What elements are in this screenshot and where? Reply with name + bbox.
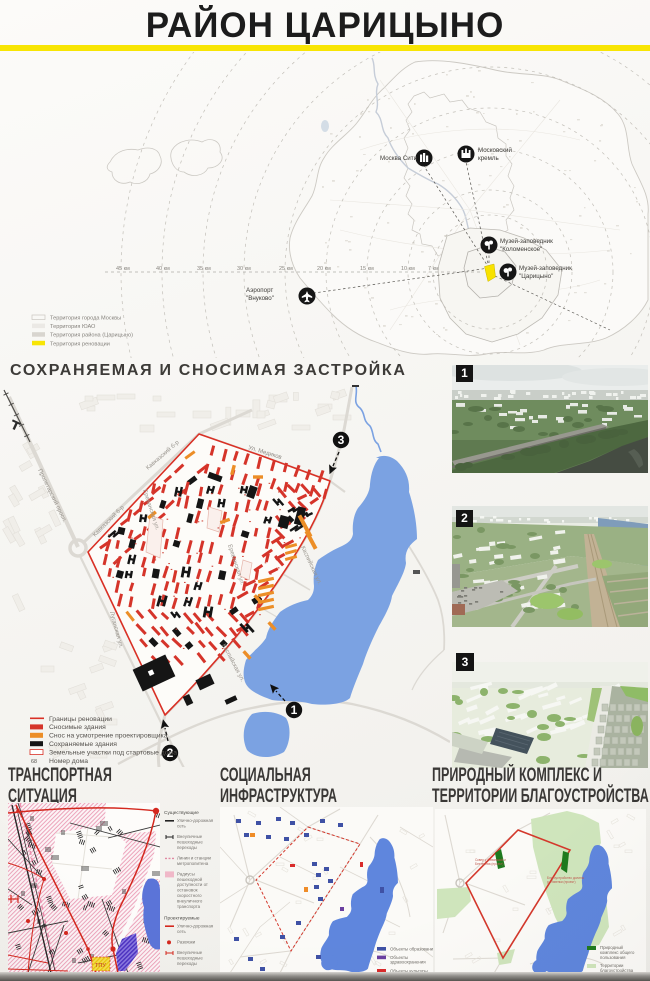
svg-text:доступности от: доступности от [177,882,208,887]
svg-text:транспорта: транспорта [177,904,201,909]
svg-text:ТПУ: ТПУ [95,963,106,969]
svg-text:Территория ЮАО: Территория ЮАО [50,324,96,330]
svg-text:Развязки: Развязки [177,939,196,944]
svg-text:пешеходные: пешеходные [177,955,203,960]
svg-text:сеть: сеть [177,929,187,934]
svg-text:Улично-дорожная: Улично-дорожная [177,923,214,928]
svg-text:68: 68 [31,759,37,765]
svg-text:Музей-заповедник: Музей-заповедник [519,265,572,272]
svg-text:внеуличного: внеуличного [177,898,203,903]
svg-text:Московский: Московский [478,147,512,154]
svg-text:Внеуличные: Внеуличные [177,834,203,839]
svg-text:Сохраняемые здания: Сохраняемые здания [49,741,117,748]
svg-text:Проектируемые: Проектируемые [164,915,200,921]
svg-text:Снос на усмотрение проектировщ: Снос на усмотрение проектировщика [49,733,168,740]
svg-text:Территория района (Царицыно): Территория района (Царицыно) [50,332,133,339]
svg-text:3: 3 [338,433,345,447]
svg-text:15 км: 15 км [360,266,374,272]
svg-text:10 км: 10 км [401,266,415,272]
svg-text:Внеуличные: Внеуличные [177,950,203,955]
svg-text:пользования: пользования [600,955,626,960]
svg-text:здравоохранения: здравоохранения [390,960,426,965]
svg-text:Территория реновации: Территория реновации [50,341,110,347]
svg-text:Линии и станции: Линии и станции [177,855,212,860]
svg-text:Границы реновации: Границы реновации [49,716,112,723]
svg-text:метрополитена: метрополитена [177,861,209,866]
svg-text:р. Язвенки (проект): р. Язвенки (проект) [547,880,576,884]
svg-text:Территория города Москвы: Территория города Москвы [50,316,121,322]
svg-text:Каспийская ул.: Каспийская ул. [220,643,246,684]
svg-text:Номер дома: Номер дома [49,758,88,765]
svg-text:Аэропорт: Аэропорт [246,287,273,294]
svg-text:переходы: переходы [177,961,197,966]
svg-text:Музей-заповедник: Музей-заповедник [500,238,553,245]
svg-text:Москва Сити: Москва Сити [380,155,418,162]
svg-text:пешеходные: пешеходные [177,839,203,844]
svg-text:Улично-дорожная: Улично-дорожная [177,818,214,823]
svg-text:Бехтерева (проект): Бехтерева (проект) [475,862,503,866]
svg-text:35 км: 35 км [197,266,211,272]
svg-text:30 км: 30 км [237,266,251,272]
svg-text:25 км: 25 км [279,266,293,272]
svg-text:скоростного: скоростного [177,893,202,898]
svg-text:20 км: 20 км [317,266,331,272]
svg-text:40 км: 40 км [156,266,170,272]
svg-text:Земельные участки под стартовы: Земельные участки под стартовые дома [49,749,177,756]
svg-text:Существующие: Существующие [164,810,199,816]
svg-text:сеть: сеть [177,823,187,828]
svg-text:Радиусы: Радиусы [177,871,195,876]
svg-text:1: 1 [291,703,298,717]
svg-text:переходы: переходы [177,845,197,850]
svg-text:Сносимые здания: Сносимые здания [49,724,106,731]
svg-text:Объекты образования: Объекты образования [390,946,433,951]
svg-text:7 км: 7 км [428,266,439,272]
svg-text:"Коломенское": "Коломенское" [500,246,542,253]
svg-text:45 км: 45 км [116,266,130,272]
svg-text:остановок: остановок [177,888,198,893]
svg-text:кремль: кремль [478,155,499,162]
svg-text:"Внуково": "Внуково" [246,295,274,302]
svg-text:пешеходной: пешеходной [177,877,203,882]
svg-text:"Царицыно": "Царицыно" [519,273,553,280]
